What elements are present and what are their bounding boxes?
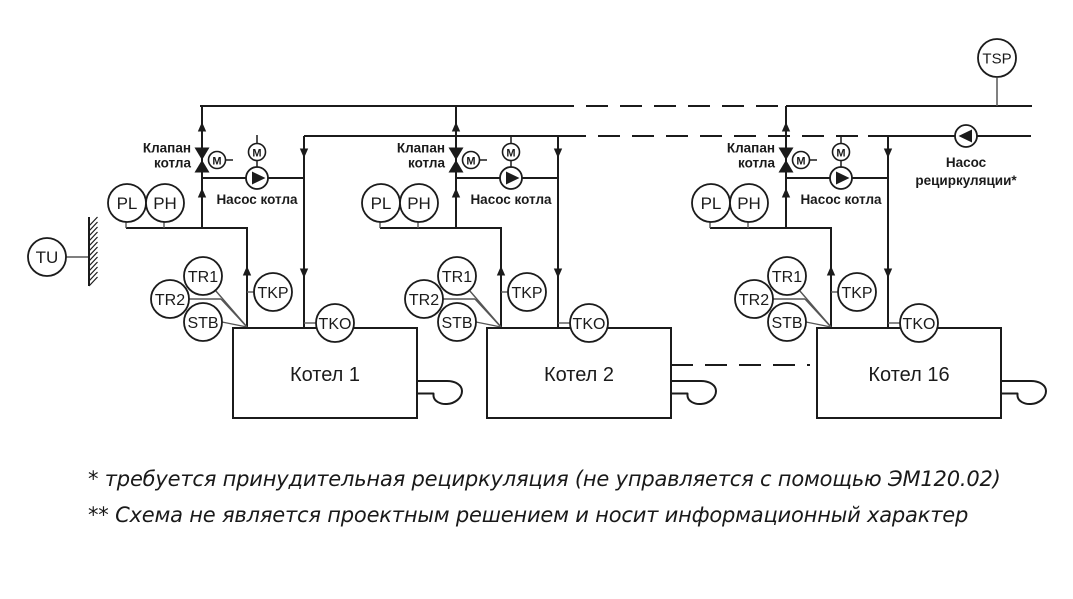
- boiler3-flow-arrow-up: [782, 188, 790, 198]
- boiler2-burner-icon: [671, 381, 716, 404]
- boiler2-flow-arrow-down: [554, 149, 562, 159]
- boiler1-valve-label: Клапан: [143, 141, 191, 156]
- wall-hatch-line: [89, 267, 98, 276]
- boiler3-ph-label: PH: [737, 194, 761, 213]
- boiler1-flow-arrow-up: [198, 188, 206, 198]
- boiler3-valve-icon: [779, 148, 794, 161]
- wall-hatch-line: [89, 227, 98, 236]
- boiler2-flow-arrow-up: [452, 188, 460, 198]
- wall-hatch-line: [89, 262, 98, 271]
- boiler2-pump-motor-label: M: [506, 147, 515, 159]
- boiler2-flow-arrow-up: [497, 266, 505, 276]
- boiler2-valve-icon: [449, 148, 464, 161]
- boiler3-pump-motor-label: M: [836, 147, 845, 159]
- boiler3-tko-label: TKO: [903, 316, 936, 333]
- wall-hatch-line: [89, 252, 98, 261]
- boiler1-flow-arrow-down: [300, 269, 308, 279]
- boiler2-pump-label: Насос котла: [470, 192, 552, 207]
- boiler3-valve-label: котла: [738, 156, 775, 171]
- wall-hatch-line: [89, 222, 98, 231]
- boiler2-tko-label: TKO: [573, 316, 606, 333]
- boiler3-name: Котел 16: [868, 364, 949, 386]
- recirculation-pump-label: рециркуляции*: [915, 173, 1017, 188]
- boiler1-valve-icon: [195, 160, 210, 173]
- boiler3-tr1-label: TR1: [772, 269, 802, 286]
- boiler1-tkp-label: TKP: [257, 285, 288, 302]
- boiler3-flow-arrow-up: [827, 266, 835, 276]
- tu-label: TU: [36, 248, 59, 267]
- boiler3-flow-arrow-down: [884, 269, 892, 279]
- boiler1-flow-arrow-up: [243, 266, 251, 276]
- wall-hatch-line: [89, 237, 98, 246]
- boiler3-tr2-label: TR2: [739, 292, 769, 309]
- wall-hatch-line: [89, 247, 98, 256]
- tsp-label: TSP: [982, 50, 1011, 67]
- boiler2-valve-icon: [449, 160, 464, 173]
- boiler2-pl-label: PL: [371, 194, 392, 213]
- boiler1-flow-arrow-up: [198, 122, 206, 132]
- boiler1-name: Котел 1: [290, 364, 360, 386]
- boiler3-tkp-label: TKP: [841, 285, 872, 302]
- boiler1-tko-label: TKO: [319, 316, 352, 333]
- boiler1-ph-label: PH: [153, 194, 177, 213]
- wall-hatch-line: [89, 217, 98, 226]
- boiler1-tr1-label: TR1: [188, 269, 218, 286]
- boiler1-flow-arrow-down: [300, 149, 308, 159]
- boiler1-valve-icon: [195, 148, 210, 161]
- wall-hatch-line: [89, 257, 98, 266]
- boiler2-flow-arrow-up: [452, 122, 460, 132]
- boiler3-pl-label: PL: [701, 194, 722, 213]
- boiler2-valve-label: Клапан: [397, 141, 445, 156]
- boiler3-valve-motor-label: M: [796, 155, 805, 167]
- boiler3-flow-arrow-up: [782, 122, 790, 132]
- boiler1-stb-label: STB: [187, 315, 218, 332]
- boiler1-pl-label: PL: [117, 194, 138, 213]
- boiler2-tr1-label: TR1: [442, 269, 472, 286]
- boiler1-valve-motor-label: M: [212, 155, 221, 167]
- boiler2-stb-label: STB: [441, 315, 472, 332]
- boiler2-name: Котел 2: [544, 364, 614, 386]
- boiler1-pump-motor-label: M: [252, 147, 261, 159]
- recirculation-pump-label: Насос: [946, 155, 987, 170]
- boiler2-tkp-label: TKP: [511, 285, 542, 302]
- boiler3-stb-label: STB: [771, 315, 802, 332]
- wall-hatch-line: [89, 277, 98, 286]
- wall-hatch-line: [89, 272, 98, 281]
- boiler3-pump-label: Насос котла: [800, 192, 882, 207]
- boiler3-flow-arrow-down: [884, 149, 892, 159]
- boiler1-tr2-label: TR2: [155, 292, 185, 309]
- boiler3-valve-label: Клапан: [727, 141, 775, 156]
- boiler2-valve-motor-label: M: [466, 155, 475, 167]
- boiler1-burner-icon: [417, 381, 462, 404]
- wall-hatch-line: [89, 242, 98, 251]
- boiler3-burner-icon: [1001, 381, 1046, 404]
- boiler3-valve-icon: [779, 160, 794, 173]
- boiler2-ph-label: PH: [407, 194, 431, 213]
- footnote-recirculation: * требуется принудительная рециркуляция …: [88, 467, 1001, 491]
- boiler2-tr2-label: TR2: [409, 292, 439, 309]
- boiler1-pump-label: Насос котла: [216, 192, 298, 207]
- diagram-canvas: TSPНасосрециркуляции*TUMMКлапанкотлаНасо…: [0, 0, 1073, 599]
- boiler2-valve-label: котла: [408, 156, 445, 171]
- boiler1-valve-label: котла: [154, 156, 191, 171]
- wall-hatch-line: [89, 232, 98, 241]
- footnote-disclaimer: ** Схема не является проектным решением …: [88, 503, 968, 527]
- boiler2-flow-arrow-down: [554, 269, 562, 279]
